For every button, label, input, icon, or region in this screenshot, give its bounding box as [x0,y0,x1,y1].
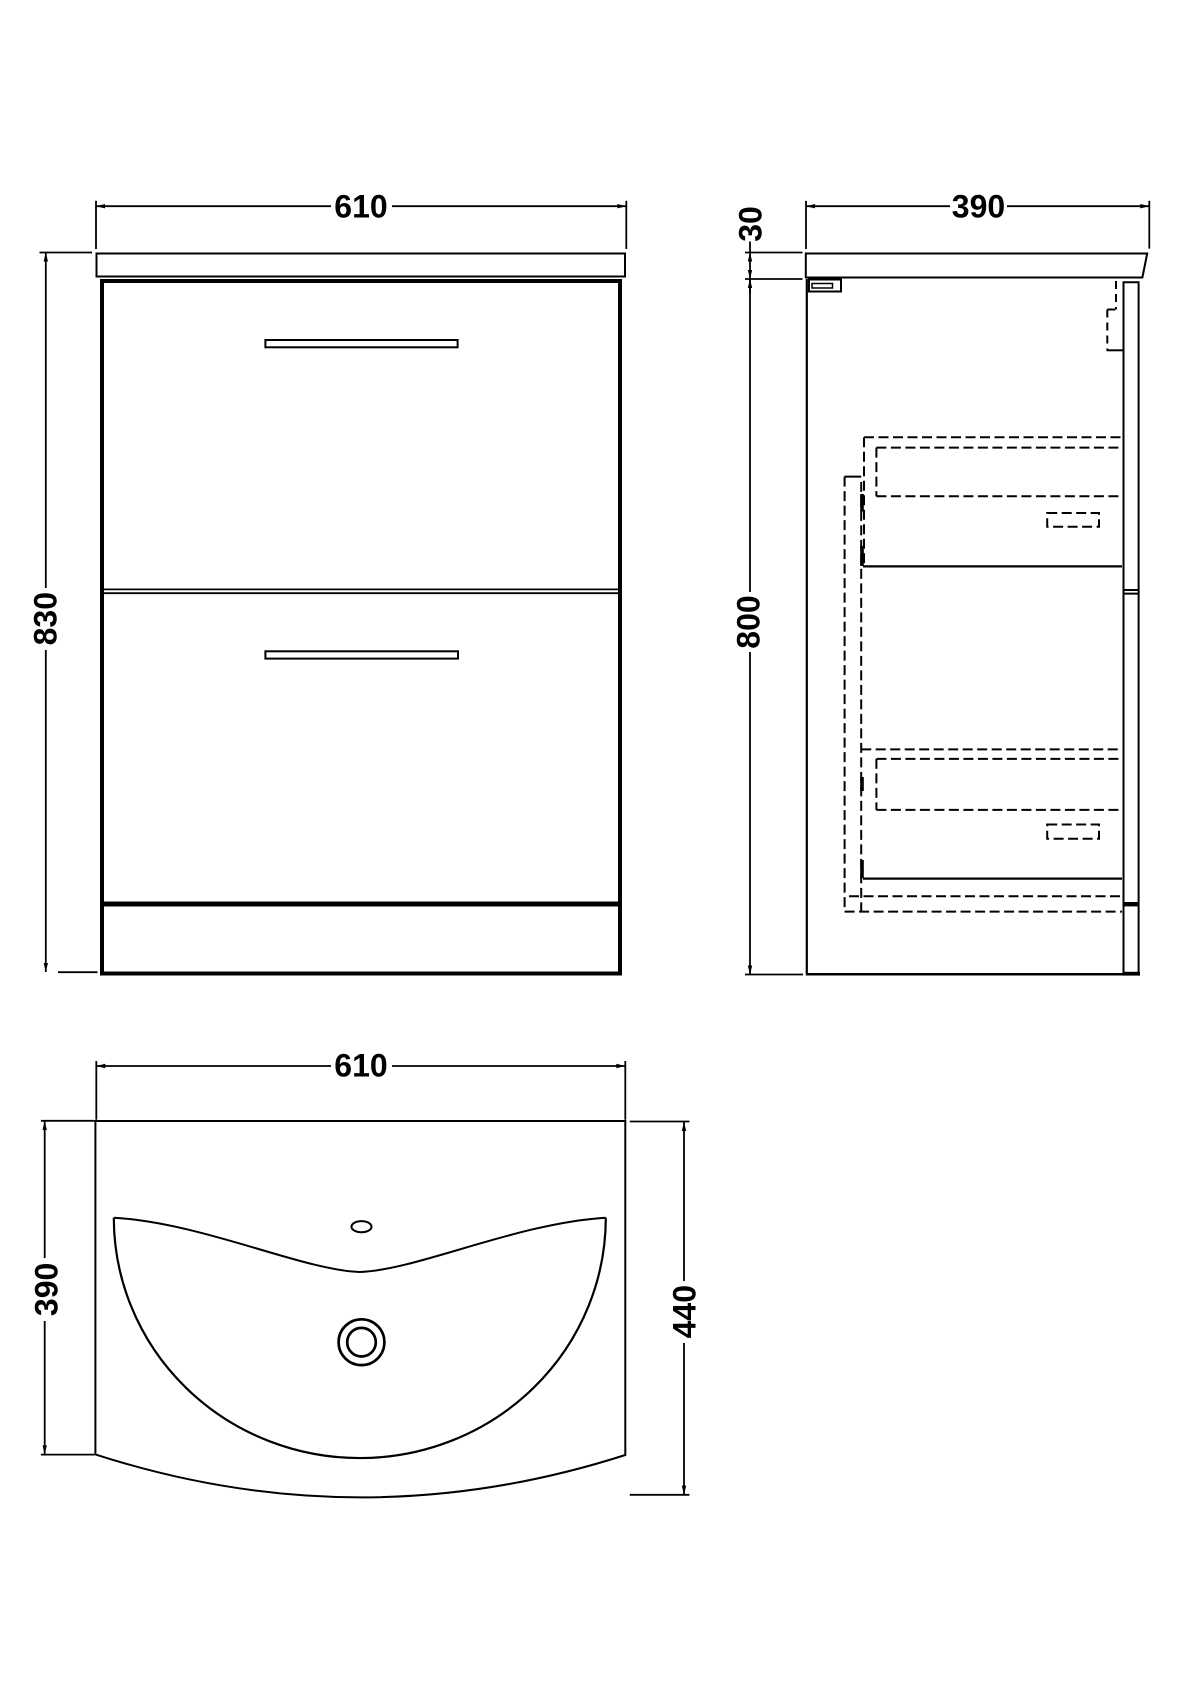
svg-text:390: 390 [29,1263,65,1316]
svg-text:830: 830 [28,592,64,645]
svg-text:610: 610 [334,1048,387,1084]
svg-text:30: 30 [733,206,769,242]
svg-text:610: 610 [334,188,387,224]
svg-text:800: 800 [731,595,767,648]
svg-text:440: 440 [667,1285,703,1338]
svg-text:390: 390 [952,188,1005,224]
